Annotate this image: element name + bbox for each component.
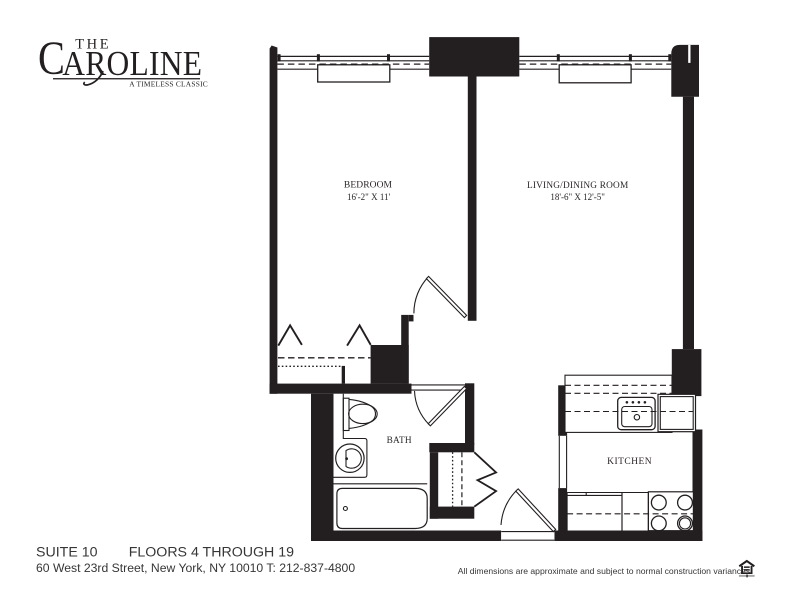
svg-text:18'-6" X 12'-5": 18'-6" X 12'-5" [550,192,605,202]
svg-text:BATH: BATH [387,436,412,446]
svg-text:KITCHEN: KITCHEN [607,457,652,467]
svg-text:16'-2" X 11': 16'-2" X 11' [347,192,390,202]
svg-text:C: C [38,32,65,85]
svg-text:All dimensions are approximate: All dimensions are approximate and subje… [458,566,753,576]
svg-text:60 West 23rd Street, New York,: 60 West 23rd Street, New York, NY 10010 … [36,561,355,575]
svg-text:SUITE 10: SUITE 10 [36,545,98,561]
svg-text:AROLINE: AROLINE [62,45,202,84]
svg-text:FLOORS 4 THROUGH 19: FLOORS 4 THROUGH 19 [129,545,294,561]
svg-text:LIVING/DINING ROOM: LIVING/DINING ROOM [527,181,628,191]
svg-text:BEDROOM: BEDROOM [344,181,393,191]
svg-text:A TIMELESS CLASSIC: A TIMELESS CLASSIC [129,80,208,89]
